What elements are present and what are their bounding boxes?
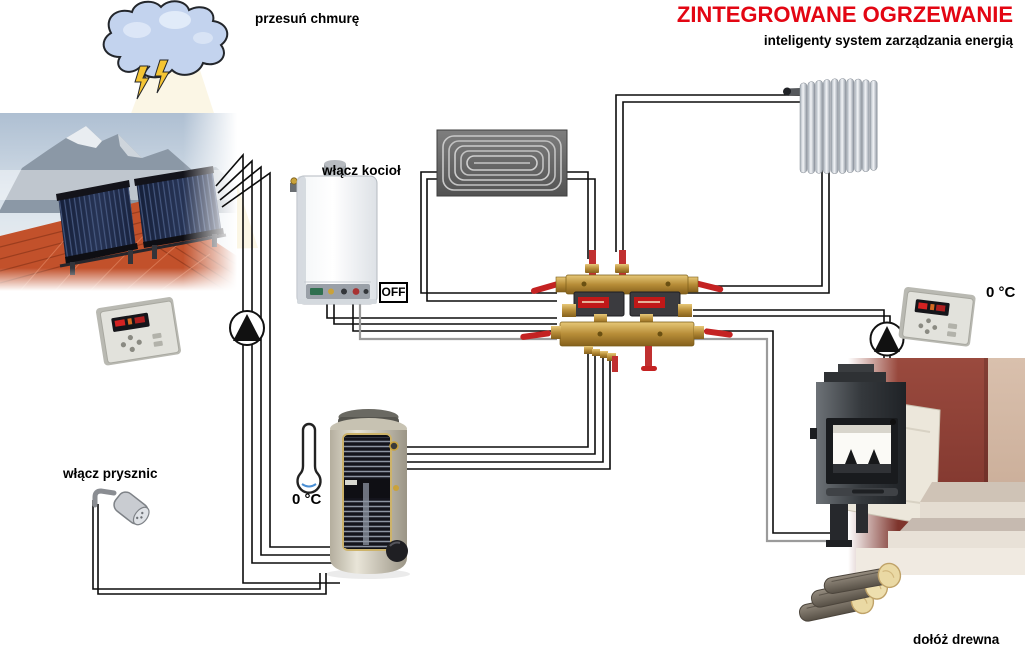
pipe-radiator-3 <box>664 170 822 286</box>
pipe-radiator-4 <box>664 170 829 293</box>
page-title: ZINTEGROWANE OGRZEWANIE <box>677 2 1013 28</box>
pipe-radiator-1 <box>616 95 806 252</box>
pipe-floor-2 <box>427 179 557 301</box>
radiator <box>783 77 877 175</box>
pipe-tank-4 <box>402 358 610 469</box>
pipe-floor-3 <box>566 172 588 259</box>
shower-label: włącz prysznic <box>63 466 158 481</box>
heating-system-diagram: ZINTEGROWANE OGRZEWANIE inteligenty syst… <box>0 0 1025 654</box>
manifold <box>520 250 733 372</box>
boiler[interactable] <box>290 160 377 304</box>
tank-temperature: 0 °C <box>292 491 321 508</box>
floor-heating <box>437 130 567 196</box>
page-subtitle: inteligenty system zarządzania energią <box>764 33 1013 48</box>
wood-label: dołóż drewna <box>913 632 999 647</box>
boiler-off-button[interactable]: OFF <box>379 282 408 303</box>
thermometer-icon <box>298 424 321 493</box>
fireplace <box>810 358 1025 575</box>
pipe-tank-3 <box>402 356 603 462</box>
solar-collector-photo <box>0 113 237 298</box>
pipe-boiler-gray <box>360 300 557 339</box>
boiler-label: włącz kocioł <box>322 163 401 178</box>
diagram-canvas <box>0 0 1025 654</box>
pipe-tank-1 <box>402 352 588 447</box>
fireplace-temperature: 0 °C <box>986 284 1015 301</box>
pipe-boiler-3 <box>353 300 557 331</box>
controller-left <box>95 296 181 365</box>
pump-left-icon <box>230 311 264 345</box>
pipe-floor-4 <box>566 179 595 259</box>
shower-head[interactable] <box>95 489 153 529</box>
valve-handle-bottom-right <box>704 328 734 338</box>
pump-right-icon <box>871 323 904 356</box>
valve-handle-top-right <box>694 280 724 293</box>
controller-right <box>898 287 976 347</box>
pipe-radiator-2 <box>623 102 806 252</box>
pipe-tank-2 <box>402 354 595 454</box>
cloud-label: przesuń chmurę <box>255 11 359 26</box>
buffer-tank <box>326 409 410 579</box>
